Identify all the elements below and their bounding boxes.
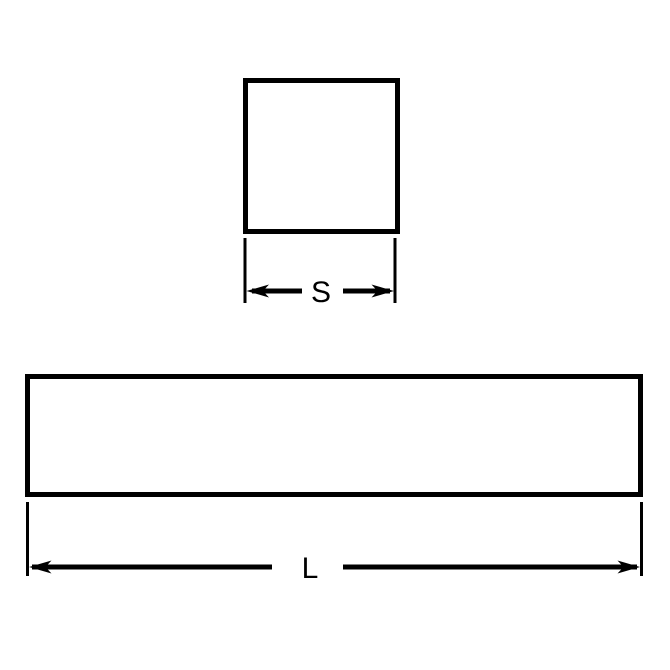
drawing-canvas: S L bbox=[0, 0, 670, 670]
l-dimension-label: L bbox=[302, 552, 319, 585]
keysteel-dimension-diagram: S L bbox=[0, 0, 670, 670]
bar-side-view bbox=[28, 377, 641, 495]
s-dimension-label: S bbox=[311, 276, 331, 309]
square-end-view bbox=[246, 81, 398, 232]
